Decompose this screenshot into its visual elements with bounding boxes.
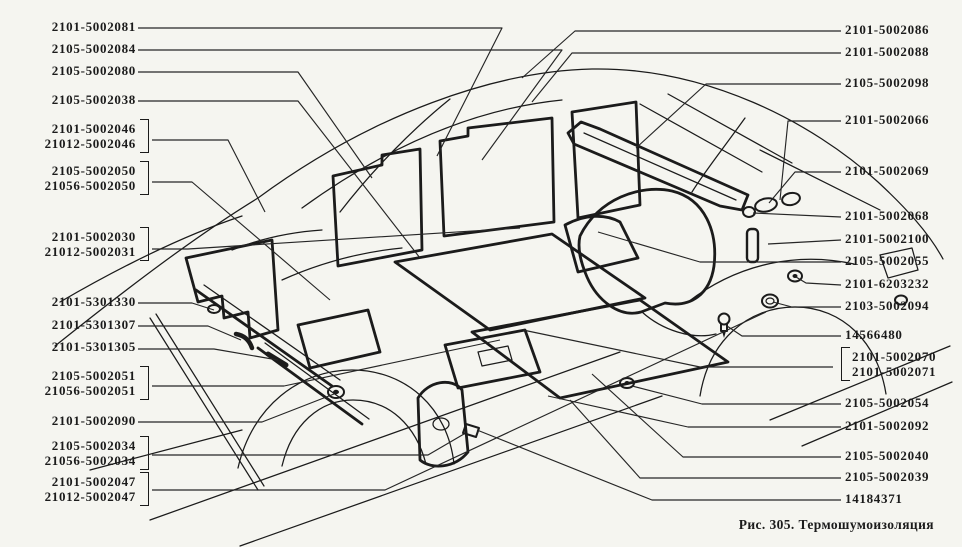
panel-seatback-mat: [440, 118, 554, 236]
part-number: 2101-5002088: [845, 45, 929, 60]
insulation-panels: [186, 102, 748, 466]
part-label-2105-5002098: 2105-5002098: [845, 76, 929, 91]
rect-pad-strip: [747, 229, 758, 262]
fastener-parts: [208, 191, 907, 437]
part-label-2101-5002100: 2101-5002100: [845, 232, 929, 247]
panel-front-bulkhead-mat: [333, 149, 422, 266]
part-label-2101-5002088: 2101-5002088: [845, 45, 929, 60]
part-number: 2105-5002098: [845, 76, 929, 91]
part-label-2101-5002086: 2101-5002086: [845, 23, 929, 38]
part-label-2105-5002084: 2105-5002084: [52, 42, 136, 57]
part-label-14184371: 14184371: [845, 492, 903, 507]
part-number: 2101-5002046: [45, 122, 136, 137]
oval-plug-left: [754, 196, 778, 213]
part-number: 2101-5301307: [52, 318, 136, 333]
part-number: 2101-5002071: [852, 365, 936, 380]
part-label-2105-5002034: 2105-500203421056-5002034: [45, 439, 136, 468]
part-number: 2101-6203232: [845, 277, 929, 292]
part-label-2101-5002047: 2101-500204721012-5002047: [45, 475, 136, 504]
part-number: 2105-5002038: [52, 93, 136, 108]
part-label-2101-5002070: 2101-50020702101-5002071: [852, 350, 936, 379]
part-number: 2101-5301305: [52, 340, 136, 355]
floor-plug: [762, 295, 778, 308]
figure-canvas: 2101-50020812105-50020842105-50020802105…: [0, 0, 962, 547]
part-number: 2105-5002084: [52, 42, 136, 57]
figure-caption: Рис. 305. Термошумоизоляция: [739, 517, 934, 533]
oval-plug-right: [781, 191, 801, 206]
part-label-2101-5002066: 2101-5002066: [845, 113, 929, 128]
panel-rear-floor-mat: [472, 300, 728, 398]
part-number: 21012-5002031: [45, 245, 136, 260]
part-number: 2101-5002090: [52, 414, 136, 429]
part-number: 2101-5002069: [845, 164, 929, 179]
part-label-2105-5002051: 2105-500205121056-5002051: [45, 369, 136, 398]
part-label-2101-5301307: 2101-5301307: [52, 318, 136, 333]
panel-cowl-mat: [445, 330, 540, 388]
part-label-2105-5002039: 2105-5002039: [845, 470, 929, 485]
part-label-14566480: 14566480: [845, 328, 903, 343]
part-label-2101-5002090: 2101-5002090: [52, 414, 136, 429]
part-label-2101-5301330: 2101-5301330: [52, 295, 136, 310]
part-label-2105-5002040: 2105-5002040: [845, 449, 929, 464]
part-label-2101-6203232: 2101-6203232: [845, 277, 929, 292]
part-label-2101-5002030: 2101-500203021012-5002031: [45, 230, 136, 259]
part-number: 2101-5002100: [845, 232, 929, 247]
part-number: 2101-5002068: [845, 209, 929, 224]
part-number: 2101-5002086: [845, 23, 929, 38]
part-label-2105-5002080: 2105-5002080: [52, 64, 136, 79]
part-number: 21056-5002050: [45, 179, 136, 194]
panel-front-floor-mat: [395, 234, 645, 330]
part-label-2105-5002055: 2105-5002055: [845, 254, 929, 269]
part-label-2105-5002038: 2105-5002038: [52, 93, 136, 108]
part-label-2103-5002094: 2103-5002094: [845, 299, 929, 314]
part-number: 2105-5002054: [845, 396, 929, 411]
part-number: 2105-5002040: [845, 449, 929, 464]
part-label-2101-5002081: 2101-5002081: [52, 20, 136, 35]
part-number: 14184371: [845, 492, 903, 507]
part-number: 21012-5002047: [45, 490, 136, 505]
panel-rear-seatback-mat: [572, 102, 640, 218]
part-label-2105-5002050: 2105-500205021056-5002050: [45, 164, 136, 193]
part-number: 2105-5002055: [845, 254, 929, 269]
part-label-2101-5002069: 2101-5002069: [845, 164, 929, 179]
part-label-2101-5002046: 2101-500204621012-5002046: [45, 122, 136, 151]
part-label-2101-5002092: 2101-5002092: [845, 419, 929, 434]
part-number: 21056-5002034: [45, 454, 136, 469]
part-number: 2105-5002039: [845, 470, 929, 485]
part-number: 2105-5002050: [45, 164, 136, 179]
part-label-2101-5002068: 2101-5002068: [845, 209, 929, 224]
part-number: 2101-5002066: [845, 113, 929, 128]
part-number: 2101-5002070: [852, 350, 936, 365]
part-number: 21012-5002046: [45, 137, 136, 152]
part-number: 2101-5301330: [52, 295, 136, 310]
part-number: 2101-5002081: [52, 20, 136, 35]
panel-tunnel-cover: [565, 216, 638, 272]
part-number: 2101-5002030: [45, 230, 136, 245]
part-number: 2105-5002051: [45, 369, 136, 384]
part-number: 2103-5002094: [845, 299, 929, 314]
part-number: 2105-5002080: [52, 64, 136, 79]
panel-rear-arch-cover: [579, 189, 715, 313]
panel-dash-insulation: [186, 240, 278, 338]
part-label-2101-5301305: 2101-5301305: [52, 340, 136, 355]
part-number: 2101-5002092: [845, 419, 929, 434]
round-plug: [743, 207, 755, 217]
push-pin-head: [719, 314, 730, 325]
part-number: 2105-5002034: [45, 439, 136, 454]
part-number: 21056-5002051: [45, 384, 136, 399]
leader-lines: [138, 28, 841, 500]
part-number: 14566480: [845, 328, 903, 343]
part-label-2105-5002054: 2105-5002054: [845, 396, 929, 411]
part-number: 2101-5002047: [45, 475, 136, 490]
